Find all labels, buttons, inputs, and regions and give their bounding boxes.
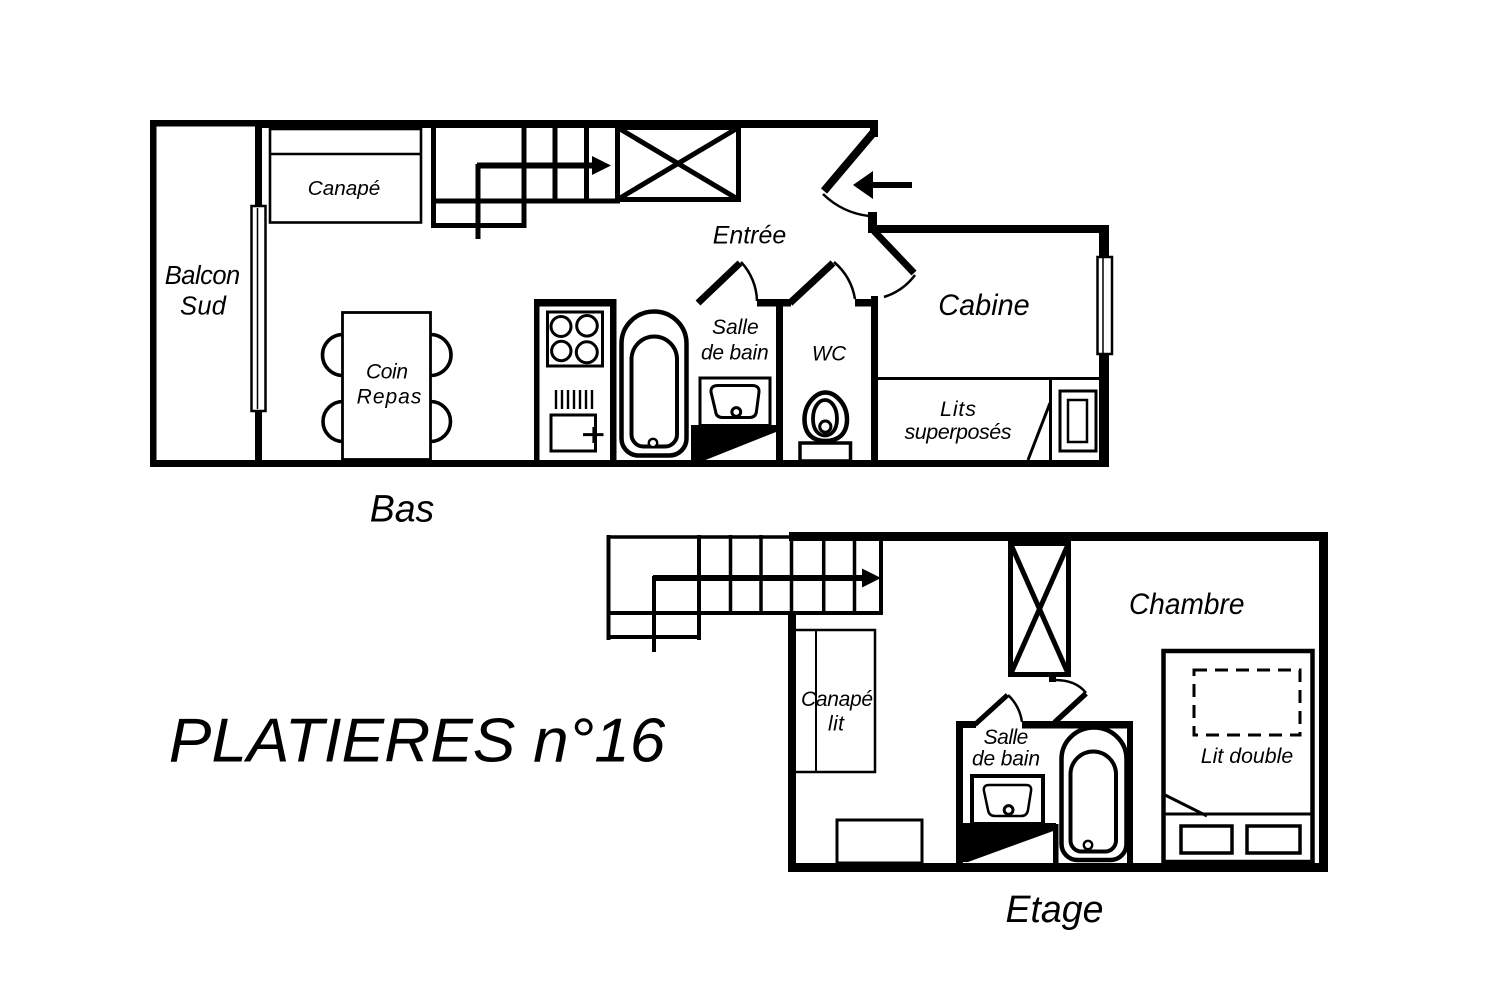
svg-text:de bain: de bain bbox=[701, 342, 769, 365]
svg-text:PLATIERES n°16: PLATIERES n°16 bbox=[169, 707, 666, 776]
svg-text:Chambre: Chambre bbox=[1129, 588, 1245, 621]
svg-text:WC: WC bbox=[812, 343, 847, 366]
svg-text:Lit double: Lit double bbox=[1201, 744, 1293, 768]
svg-text:Cabine: Cabine bbox=[938, 289, 1029, 322]
svg-text:Bas: Bas bbox=[370, 489, 435, 531]
svg-text:Lits: Lits bbox=[940, 397, 976, 421]
svg-text:Salle: Salle bbox=[984, 726, 1029, 749]
svg-text:lit: lit bbox=[828, 713, 845, 736]
svg-text:Coin: Coin bbox=[366, 361, 408, 384]
svg-text:de bain: de bain bbox=[972, 748, 1040, 771]
svg-text:superposés: superposés bbox=[904, 420, 1011, 444]
svg-text:Balcon: Balcon bbox=[165, 262, 240, 290]
svg-text:Entrée: Entrée bbox=[713, 222, 786, 250]
svg-text:Repas: Repas bbox=[357, 386, 422, 409]
svg-text:Salle: Salle bbox=[712, 316, 759, 339]
svg-text:Etage: Etage bbox=[1006, 889, 1104, 931]
svg-text:Sud: Sud bbox=[180, 293, 227, 321]
svg-text:Canapé: Canapé bbox=[308, 177, 381, 200]
svg-text:Canapé: Canapé bbox=[801, 688, 873, 711]
